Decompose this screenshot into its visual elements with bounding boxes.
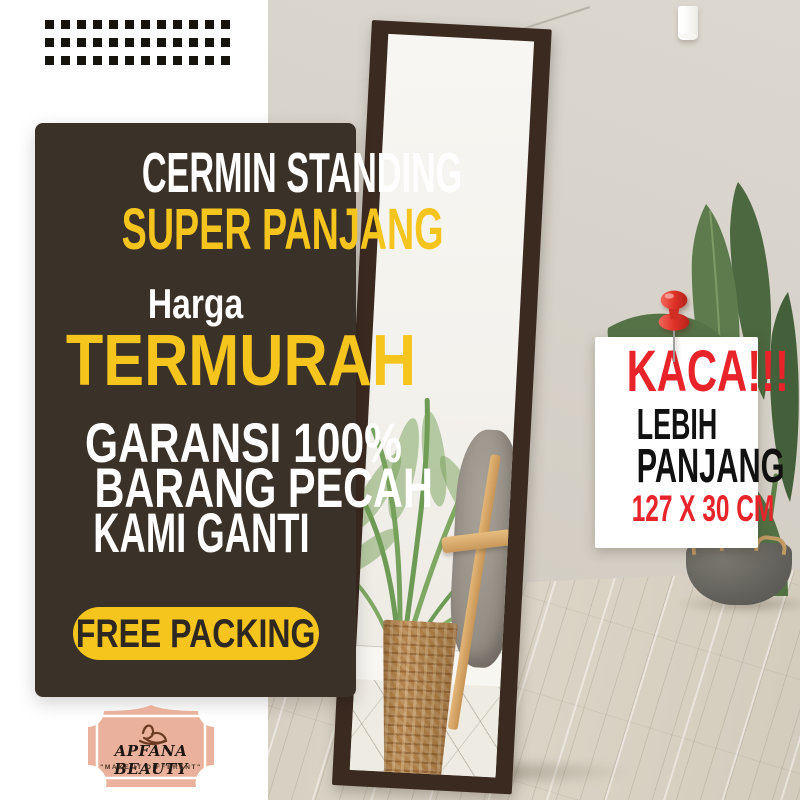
dot xyxy=(125,20,134,29)
promo-panel: CERMIN STANDING SUPER PANJANG Harga TERM… xyxy=(35,123,356,697)
size-card: KACA!!! LEBIH PANJANG 127 X 30 CM xyxy=(595,337,758,548)
pushpin-icon xyxy=(654,288,694,364)
dot xyxy=(45,56,54,65)
free-packing-button: FREE PACKING xyxy=(73,607,319,660)
dot xyxy=(205,56,214,65)
dot xyxy=(61,20,70,29)
dot xyxy=(93,20,102,29)
dot xyxy=(221,38,230,47)
dot xyxy=(141,38,150,47)
dot xyxy=(45,20,54,29)
dot xyxy=(125,56,134,65)
dot xyxy=(205,20,214,29)
dot xyxy=(77,56,86,65)
dot xyxy=(157,20,166,29)
price-label: Harga xyxy=(35,283,356,325)
dot xyxy=(109,20,118,29)
dot xyxy=(173,20,182,29)
ceiling-lamp xyxy=(678,6,698,40)
dot xyxy=(221,56,230,65)
brand-tagline: "MAKE IT DIFFERENT" xyxy=(88,764,214,771)
dot xyxy=(141,56,150,65)
promo-title-line2: SUPER PANJANG xyxy=(35,201,356,259)
dot xyxy=(189,20,198,29)
dot xyxy=(93,38,102,47)
dot xyxy=(141,20,150,29)
poster-canvas: KACA!!! LEBIH PANJANG 127 X 30 CM xyxy=(0,0,800,800)
dot xyxy=(205,38,214,47)
dots-pattern xyxy=(45,20,230,74)
dot xyxy=(109,38,118,47)
dot xyxy=(61,38,70,47)
dot xyxy=(93,56,102,65)
dot xyxy=(157,56,166,65)
brand-badge: APFANA BEAUTY "MAKE IT DIFFERENT" xyxy=(88,703,214,787)
promo-title-line1: CERMIN STANDING xyxy=(35,145,356,202)
dot xyxy=(125,38,134,47)
dot xyxy=(173,38,182,47)
size-card-line2: PANJANG xyxy=(595,443,758,491)
dot xyxy=(45,38,54,47)
brand-name: APFANA BEAUTY xyxy=(88,742,214,778)
price-highlight: TERMURAH xyxy=(35,325,356,397)
dot xyxy=(109,56,118,65)
dot xyxy=(77,20,86,29)
size-card-dimensions: 127 X 30 CM xyxy=(595,490,758,527)
dot xyxy=(189,38,198,47)
dot xyxy=(173,56,182,65)
dot xyxy=(221,20,230,29)
dot xyxy=(77,38,86,47)
guarantee-line: KAMI GANTI xyxy=(35,505,356,561)
dot xyxy=(157,38,166,47)
dot xyxy=(189,56,198,65)
dot xyxy=(61,56,70,65)
